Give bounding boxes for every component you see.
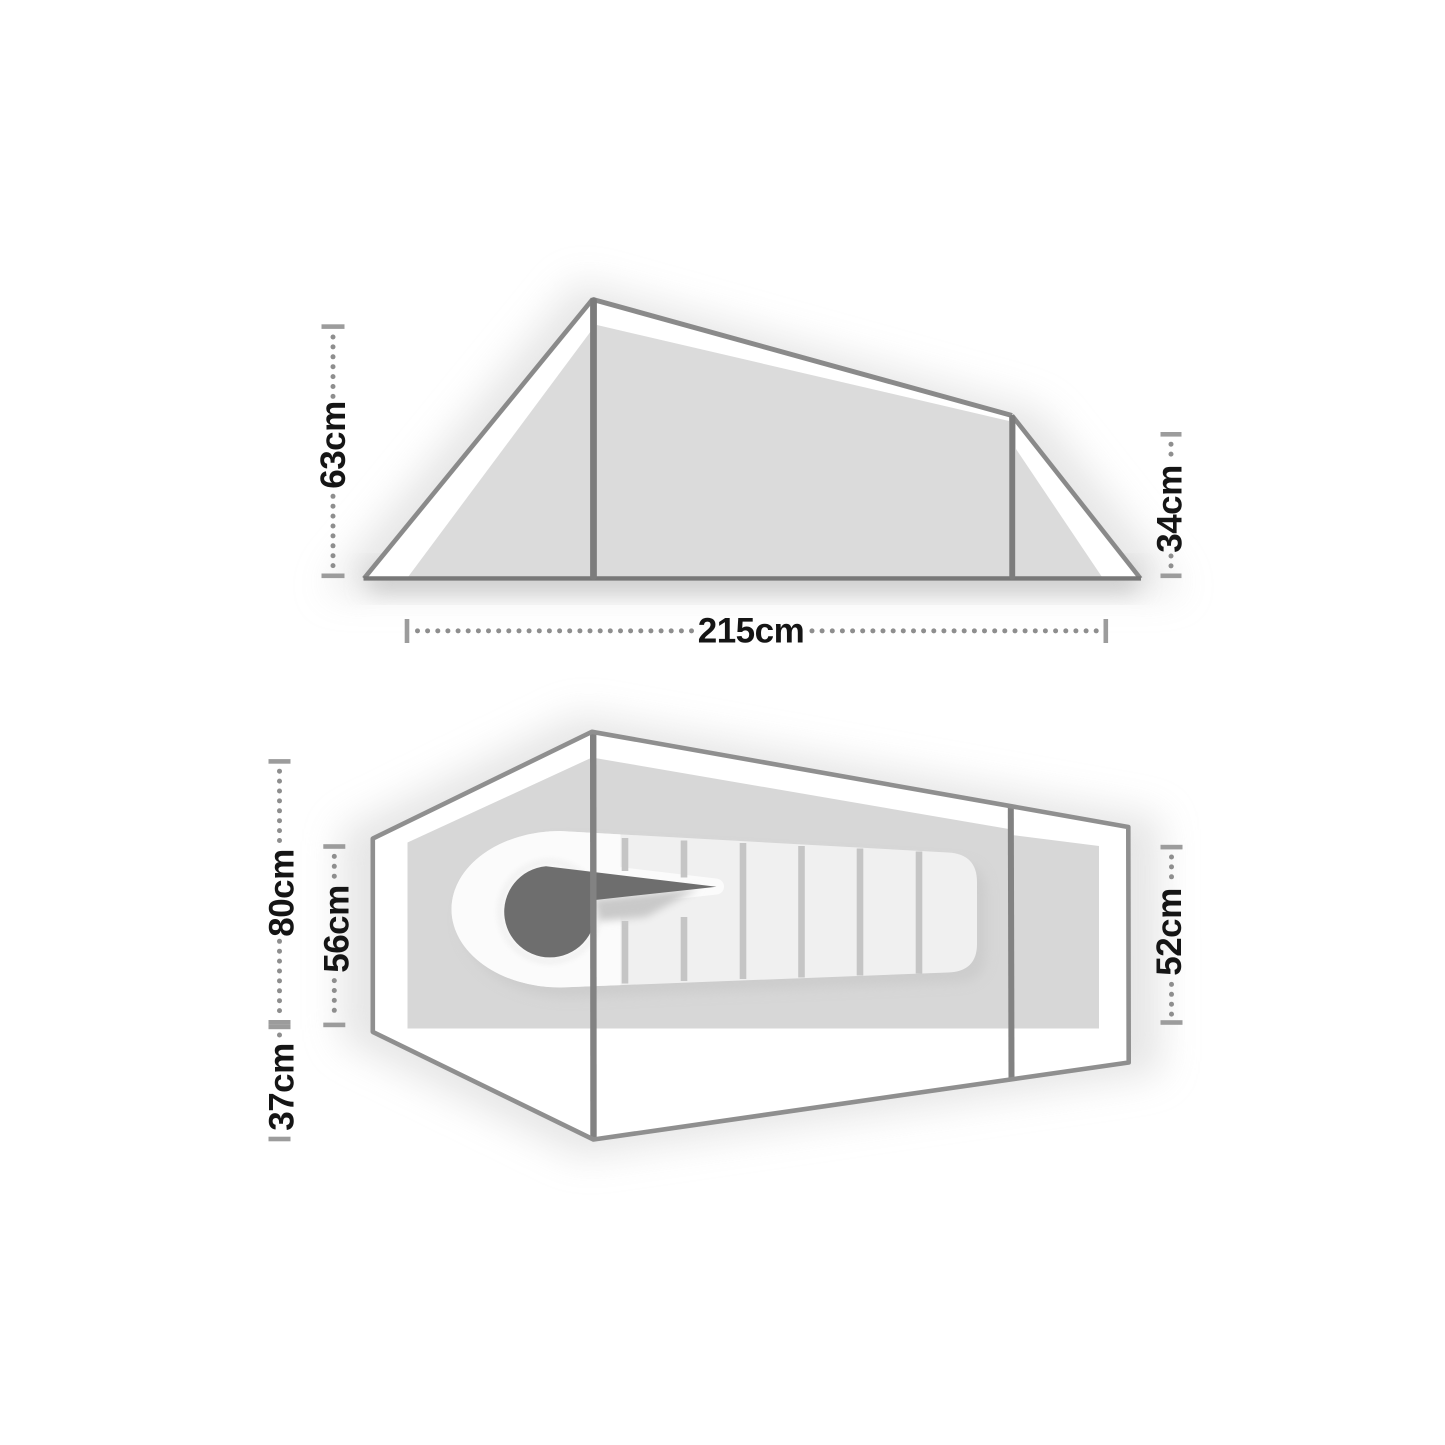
svg-text:56cm: 56cm xyxy=(318,885,357,973)
svg-text:37cm: 37cm xyxy=(263,1043,302,1131)
svg-text:52cm: 52cm xyxy=(1150,888,1189,976)
svg-text:63cm: 63cm xyxy=(314,401,353,489)
svg-text:80cm: 80cm xyxy=(263,849,302,937)
svg-text:34cm: 34cm xyxy=(1151,465,1190,553)
svg-text:215cm: 215cm xyxy=(698,612,804,651)
